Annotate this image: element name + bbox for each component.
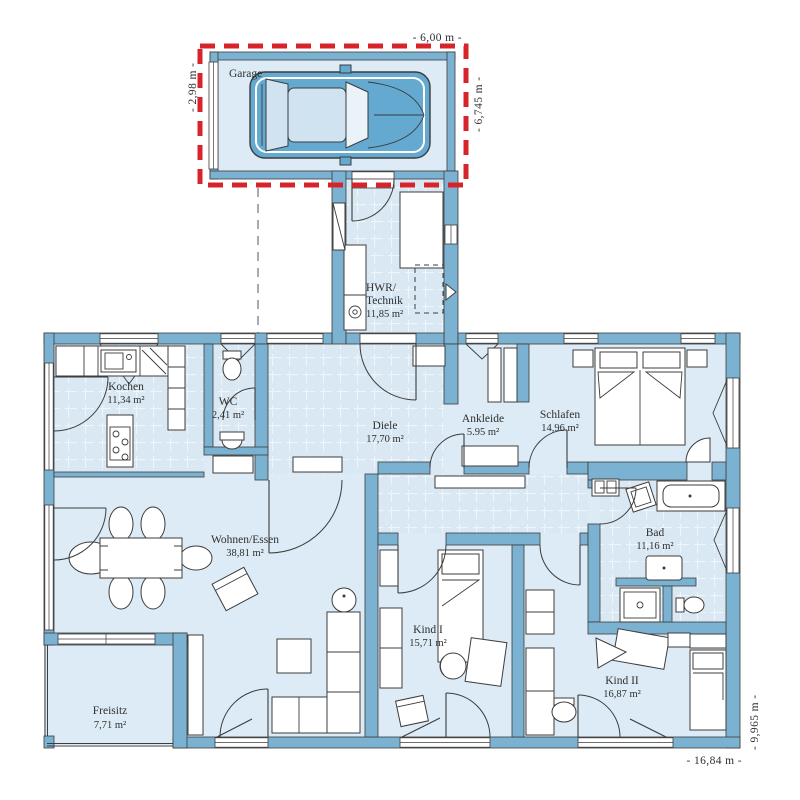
room-label-kochen: Kochen (108, 381, 144, 393)
wall-kind1-kind2 (512, 545, 524, 737)
room-area-hwr: 11,85 m² (366, 309, 403, 320)
room-area-freisitz: 7,71 m² (94, 720, 126, 731)
wall-schlafen-bad-a (588, 462, 687, 480)
wall-schlafen-bad-b (712, 462, 726, 480)
room-area-kochen: 11,34 m² (107, 395, 144, 406)
room-area-kind2: 16,87 m² (603, 689, 641, 700)
window-wc-top (221, 334, 255, 343)
room-area-kind1: 15,71 m² (409, 638, 447, 649)
room-label-hwr: HWR/ (366, 282, 397, 294)
dim-garage-depth-left: - 2,98 m - (187, 63, 199, 112)
car-icon (250, 65, 430, 165)
garage-door (209, 62, 218, 169)
wall-corridor-north-a (378, 462, 430, 474)
wall-kochen-wc (204, 344, 213, 447)
room-label-bad: Bad (646, 527, 665, 539)
window-kochen-left (45, 363, 53, 470)
room-area-wc: 2,41 m² (212, 410, 244, 421)
floor-plan-page: Garage HWR/ Technik 11,85 m² Kochen 11,3… (0, 0, 800, 800)
dim-garage-width: - 6,00 m - (413, 32, 462, 44)
window-kind1-bottom (400, 738, 490, 747)
garage-wall-right (447, 52, 455, 179)
hwr-wall-hatch (445, 225, 457, 244)
side-table (277, 639, 311, 673)
wall-bad-bottom (588, 622, 726, 634)
wall-corridor-south-b (446, 533, 540, 545)
wall-freisitz-right (173, 633, 187, 748)
room-label-kind1: Kind I (413, 624, 443, 636)
dim-house-width: - 16,84 m - (686, 755, 742, 767)
room-label-freisitz: Freisitz (93, 705, 128, 717)
window-schlafen-top-left (564, 334, 598, 343)
dim-house-depth: - 9,965 m - (749, 694, 761, 750)
window-kind2-bottom (578, 738, 673, 747)
room-area-schlafen: 14,96 m² (541, 423, 579, 434)
room-label-wohnen: Wohnen/Essen (211, 534, 279, 546)
room-label-hwr2: Technik (366, 295, 403, 307)
wall-corridor-north-c (567, 462, 588, 474)
wall-kochen-wohnen (54, 472, 204, 477)
room-label-wc: WC (219, 396, 238, 408)
wall-wohnen-kind1 (365, 474, 378, 737)
window-diele-top (267, 334, 323, 343)
room-label-garage: Garage (229, 68, 262, 80)
hwr-diele-opening (360, 334, 416, 343)
floor-plan: Garage HWR/ Technik 11,85 m² Kochen 11,3… (0, 0, 800, 800)
wall-diele-ankleide (444, 344, 458, 404)
room-label-diele: Diele (373, 420, 398, 432)
dim-garage-depth-right: - 6,745 m - (473, 76, 485, 132)
room-label-ankleide: Ankleide (462, 413, 504, 425)
window-wohnen-left (45, 505, 53, 630)
room-area-ankleide: 5.95 m² (467, 427, 499, 438)
room-area-diele: 17,70 m² (366, 434, 404, 445)
window-wohnen-bottom-door (215, 738, 268, 747)
terrace-sliding-door (58, 634, 155, 644)
room-area-bad: 11,16 m² (636, 541, 673, 552)
round-table (332, 588, 356, 612)
garage-wall-top (210, 52, 455, 60)
tv-sideboard (188, 635, 203, 735)
window-schlafen-top-right (681, 334, 715, 343)
wall-corridor-south-c (580, 533, 588, 545)
window-ankleide-top (466, 334, 498, 343)
window-kochen-top (100, 334, 158, 343)
wall-wc-right (255, 344, 268, 480)
wall-corridor-south-a (378, 533, 398, 545)
corridor-wall-right (444, 171, 458, 344)
room-label-schlafen: Schlafen (540, 409, 580, 421)
room-area-wohnen: 38,81 m² (226, 548, 264, 559)
wall-ankleide-schlafen (517, 344, 529, 402)
dining-table (100, 538, 182, 578)
room-label-kind2: Kind II (605, 675, 639, 687)
wall-bad-left-b (588, 524, 600, 622)
